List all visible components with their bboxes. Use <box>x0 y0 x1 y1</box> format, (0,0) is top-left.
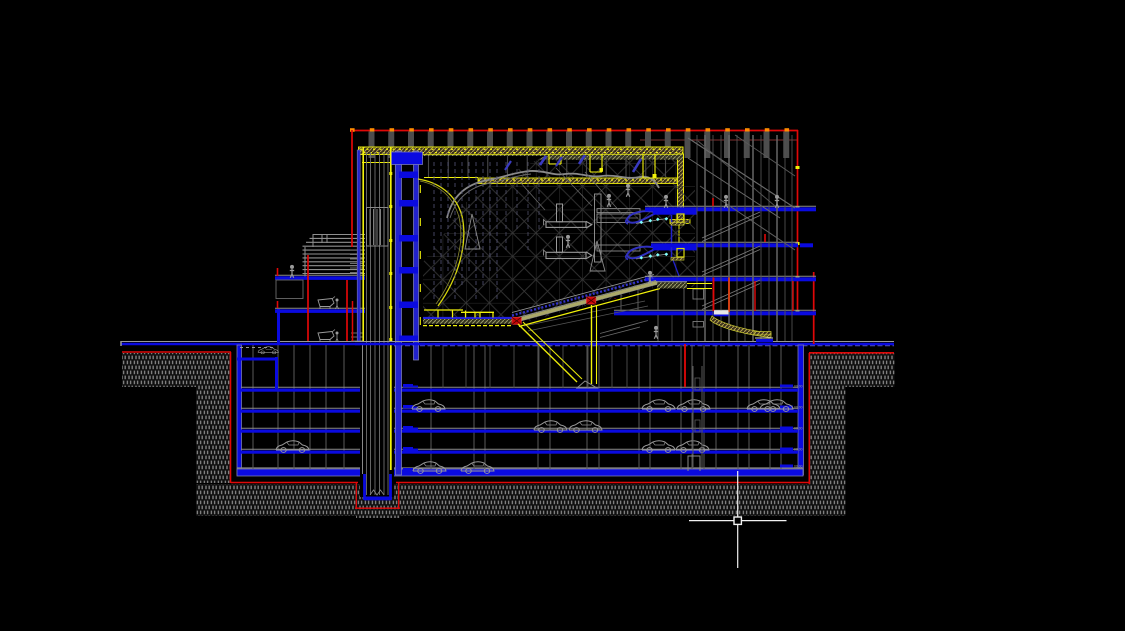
svg-text:00.00: 00.00 <box>794 406 803 410</box>
svg-text:00.00: 00.00 <box>794 427 803 431</box>
svg-text:00.00: 00.00 <box>794 448 803 452</box>
svg-text:00.00: 00.00 <box>794 465 803 469</box>
svg-text:00.00: 00.00 <box>794 385 803 389</box>
